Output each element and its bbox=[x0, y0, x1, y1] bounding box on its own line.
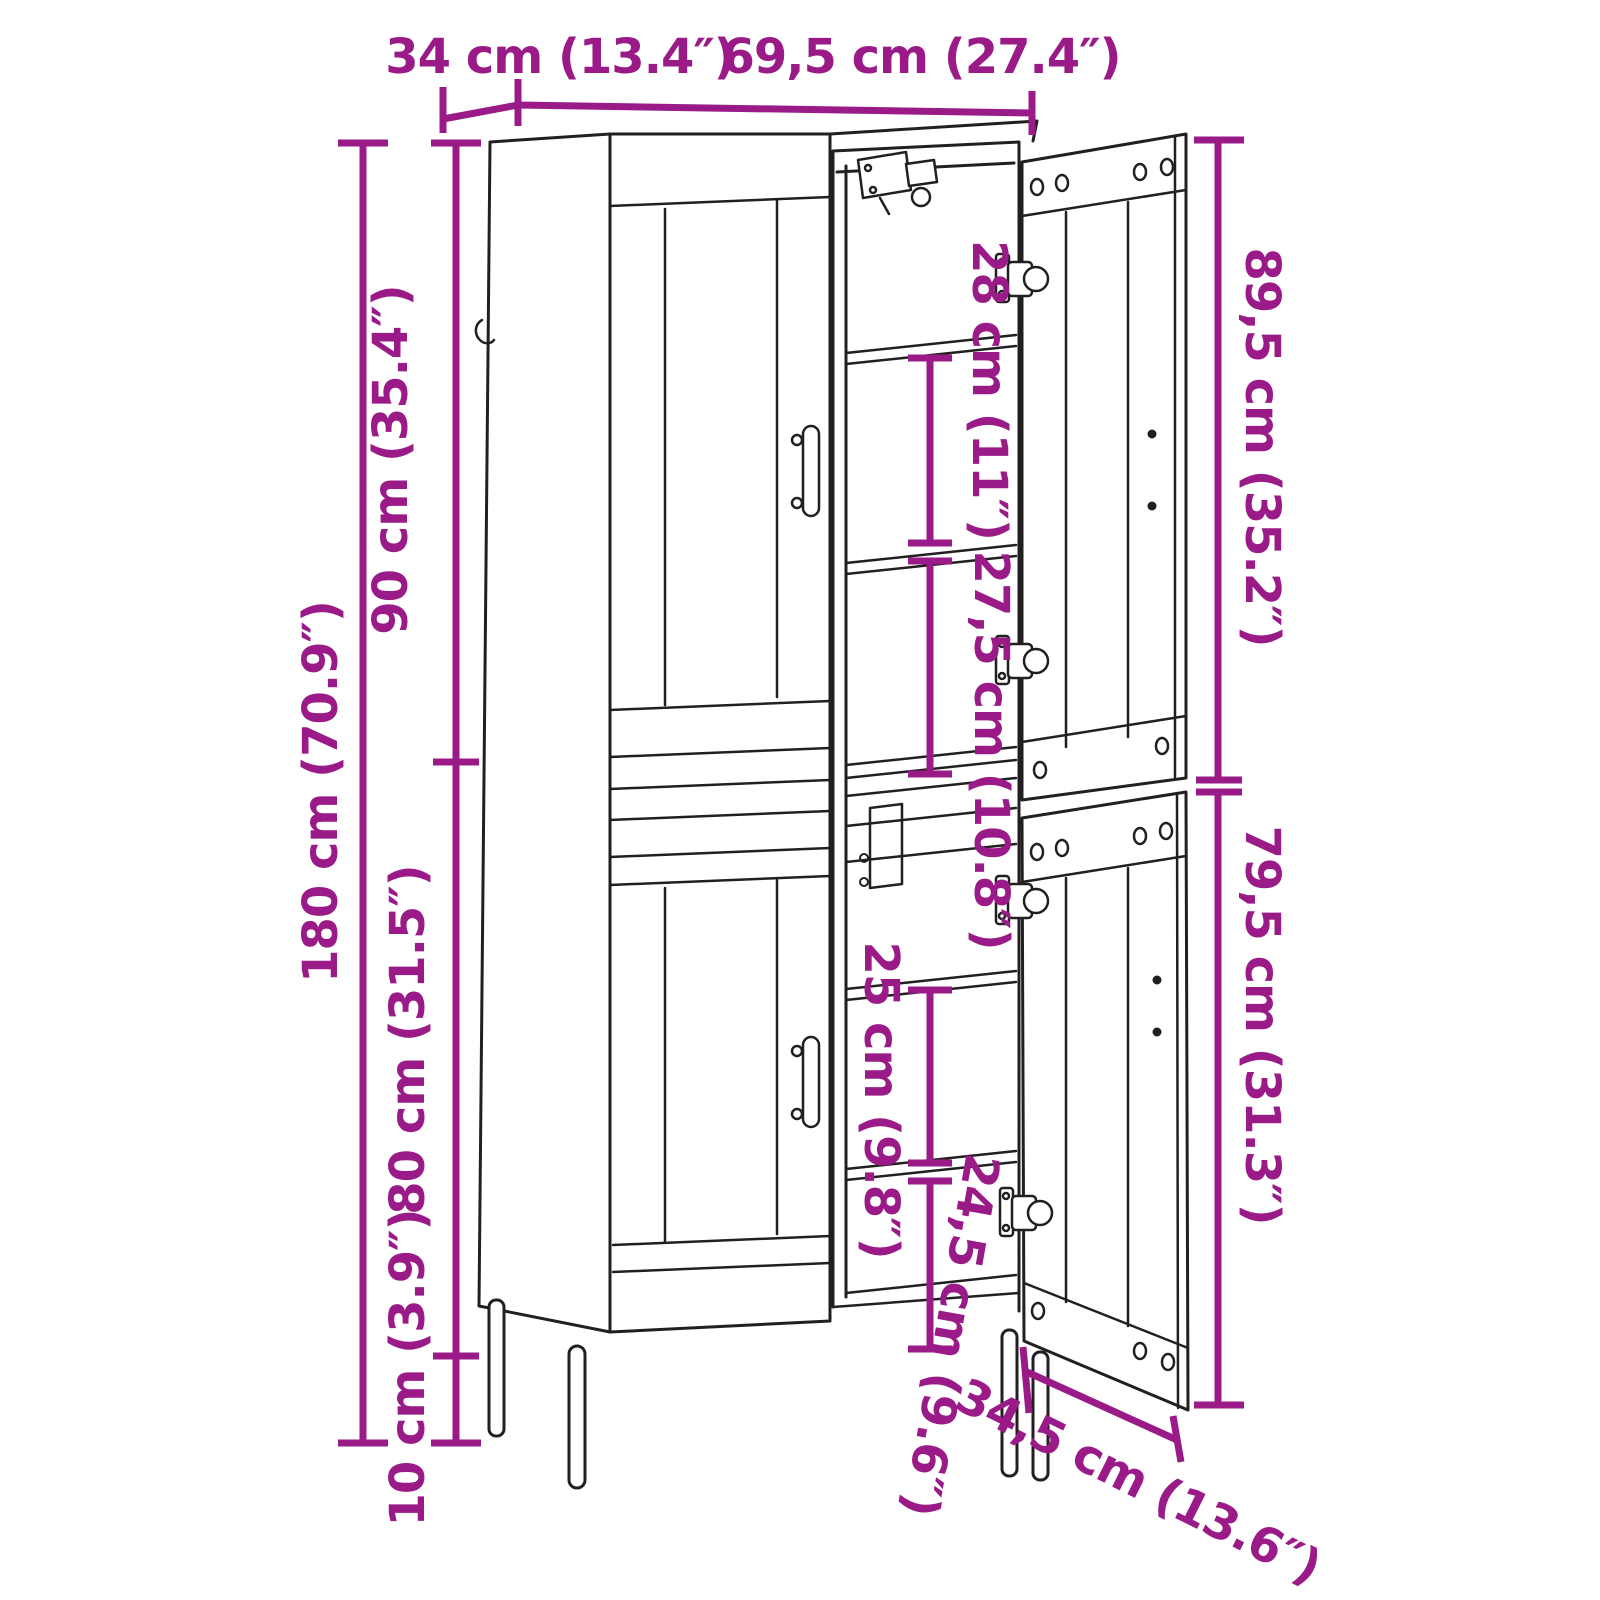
dim-label-leg-height: 10 cm (3.9″) bbox=[380, 1209, 436, 1526]
dimension-diagram: 34 cm (13.4″) 69,5 cm (27.4″) 180 cm (70… bbox=[0, 0, 1600, 1600]
right-door-lower bbox=[1022, 792, 1188, 1410]
hinge-top bbox=[858, 152, 937, 214]
front-rails bbox=[610, 197, 830, 1272]
shelf-pin-hole bbox=[860, 878, 868, 886]
door-handle-upper bbox=[792, 426, 819, 516]
dim-label-upper-shelf-gap-2: 27,5 cm (10.8″) bbox=[963, 550, 1019, 949]
dimension-lines bbox=[338, 79, 1244, 1462]
door-plank-lines bbox=[665, 201, 777, 1242]
wall-bracket bbox=[476, 320, 494, 343]
dim-label-right-upper-height: 89,5 cm (35.2″) bbox=[1234, 247, 1290, 646]
dim-label-total-height: 180 cm (70.9″) bbox=[293, 601, 349, 983]
cabinet-drawing bbox=[476, 121, 1188, 1488]
dim-label-base-depth: 34,5 cm (13.6″) bbox=[947, 1368, 1329, 1596]
dim-line-section-heights bbox=[431, 143, 481, 1443]
dim-label-upper-height: 90 cm (35.4″) bbox=[363, 285, 419, 634]
hinge-hardware bbox=[1000, 1188, 1052, 1236]
dim-label-top-depth: 34 cm (13.4″) bbox=[385, 29, 734, 85]
dim-label-top-width: 69,5 cm (27.4″) bbox=[721, 29, 1120, 85]
front-column bbox=[610, 134, 830, 1332]
dim-label-lower-height: 80 cm (31.5″) bbox=[380, 865, 436, 1214]
dim-label-right-lower-height: 79,5 cm (31.3″) bbox=[1234, 825, 1290, 1224]
dim-label-lower-shelf-gap-1: 25 cm (9.8″) bbox=[853, 941, 909, 1258]
right-door-upper bbox=[1022, 134, 1186, 800]
door-handle-lower bbox=[792, 1037, 819, 1127]
side-panel bbox=[479, 134, 610, 1332]
top-edge bbox=[830, 121, 1037, 141]
back-divider bbox=[870, 804, 902, 888]
dim-label-upper-shelf-gap-1: 28 cm (11″) bbox=[961, 240, 1017, 540]
